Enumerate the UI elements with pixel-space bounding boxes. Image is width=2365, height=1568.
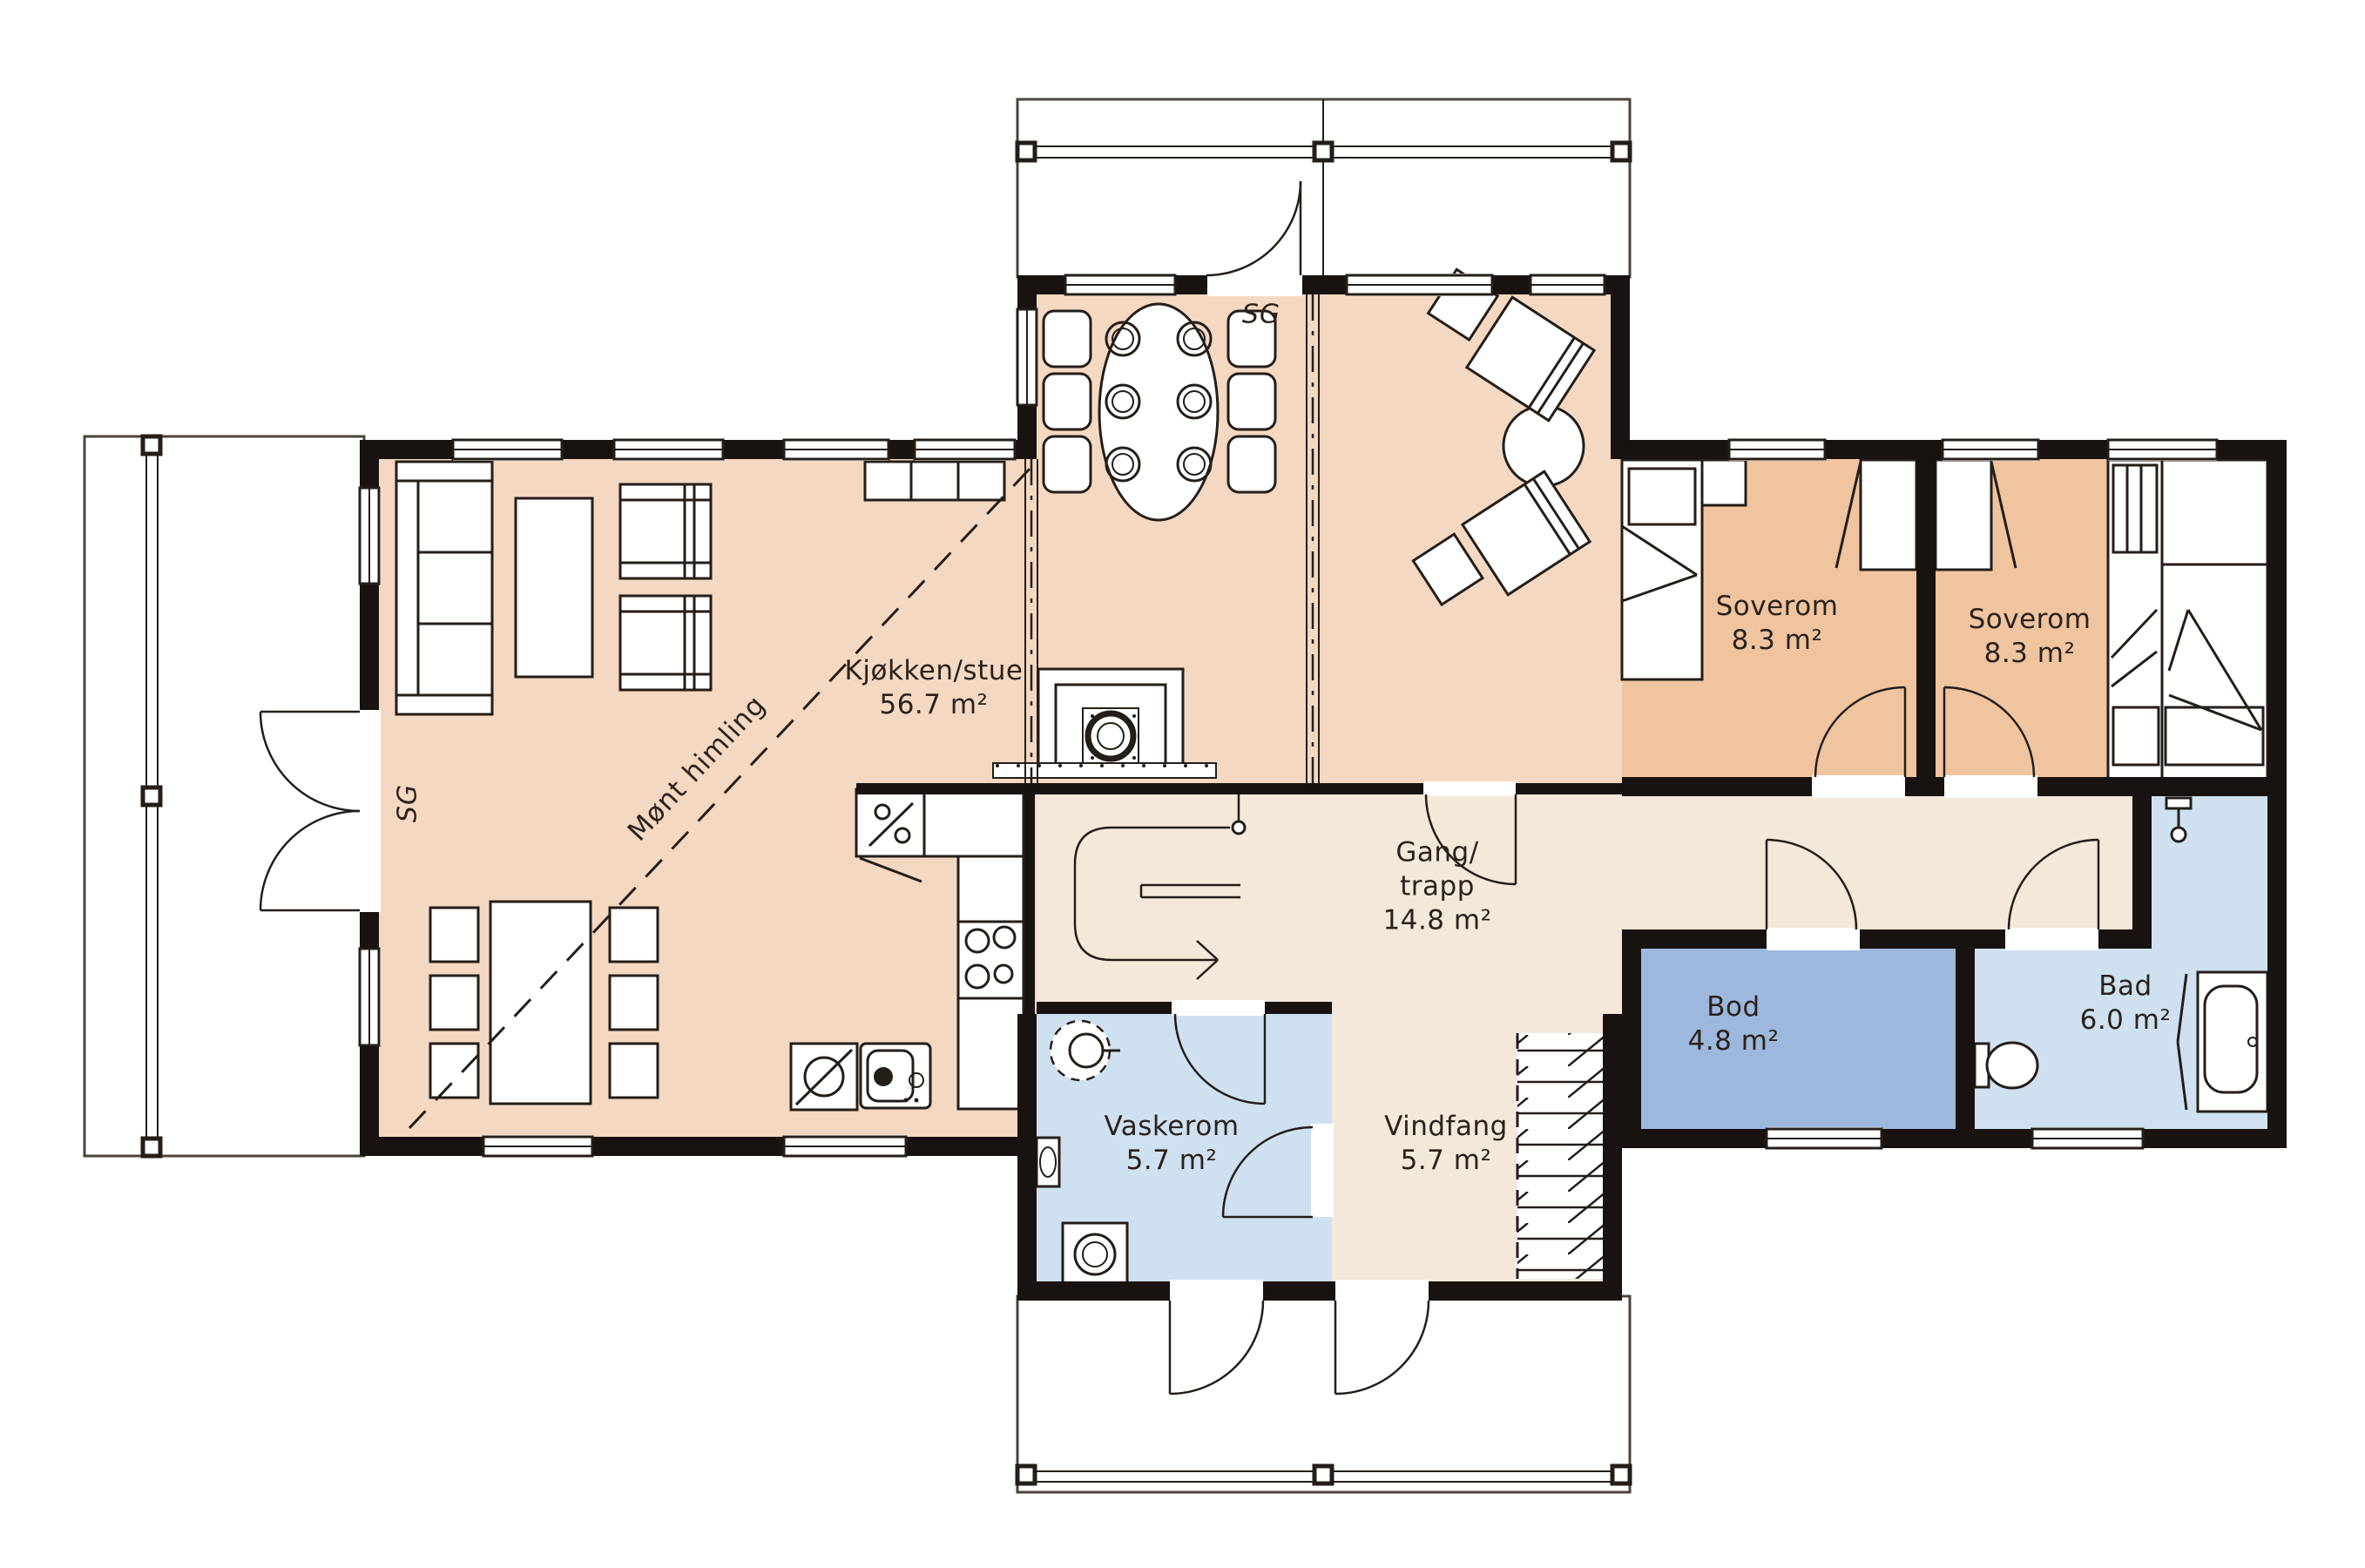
label-kjokken-stue: Kjøkken/stue 56.7 m² — [845, 654, 1024, 722]
room-name: Kjøkken/stue — [845, 654, 1024, 688]
room-area: 56.7 m² — [845, 688, 1024, 722]
stove — [958, 922, 1024, 998]
room-area: 8.3 m² — [1969, 637, 2091, 671]
washing-machine — [1063, 1223, 1127, 1286]
room-area: 4.8 m² — [1688, 1024, 1780, 1058]
room-name: Bod — [1688, 990, 1780, 1024]
coffee-table — [516, 498, 592, 677]
label-sg-left: SG — [393, 784, 423, 822]
room-name: Vaskerom — [1104, 1110, 1239, 1144]
room-name: Vindfang — [1384, 1110, 1508, 1144]
vindfang-closet — [1517, 1033, 1603, 1279]
floor-plan: Kjøkken/stue 56.7 m² Gang/ trapp 14.8 m²… — [0, 0, 2365, 1568]
deck-left — [84, 436, 364, 1156]
kitchen-sink — [861, 1044, 930, 1108]
label-vaskerom: Vaskerom 5.7 m² — [1104, 1110, 1239, 1178]
dining-table — [490, 902, 591, 1104]
room-area: 5.7 m² — [1104, 1144, 1239, 1178]
room-area: 6.0 m² — [2080, 1004, 2172, 1037]
label-soverom-1: Soverom 8.3 m² — [1716, 590, 1839, 658]
room-name: Soverom — [1969, 603, 2091, 637]
room-area: 8.3 m² — [1716, 624, 1839, 658]
armchair-1 — [620, 484, 711, 578]
dishwasher — [791, 1044, 857, 1110]
label-bod: Bod 4.8 m² — [1688, 990, 1780, 1058]
room-name: Bad — [2080, 970, 2172, 1004]
label-vindfang: Vindfang 5.7 m² — [1384, 1110, 1508, 1178]
floor-plan-drawing — [0, 0, 2365, 1568]
label-bad: Bad 6.0 m² — [2080, 970, 2172, 1037]
armchair-2 — [620, 596, 711, 690]
sideboard — [865, 462, 1004, 500]
oval-dining-table — [1099, 304, 1218, 520]
label-sg-top: SG — [1242, 300, 1280, 330]
deck-bottom — [1017, 1296, 1630, 1492]
deck-top — [1017, 99, 1630, 277]
laundry-sink — [1037, 1138, 1059, 1186]
room-name: trapp — [1382, 869, 1491, 903]
room-area: 14.8 m² — [1382, 904, 1491, 938]
label-soverom-2: Soverom 8.3 m² — [1969, 603, 2091, 671]
room-name: Soverom — [1716, 590, 1839, 624]
bunk-bed-soverom-2 — [2108, 460, 2267, 784]
room-name: Gang/ — [1382, 835, 1491, 869]
room-area: 5.7 m² — [1384, 1144, 1508, 1178]
label-gang-trapp: Gang/ trapp 14.8 m² — [1382, 835, 1491, 937]
toilet — [1975, 1043, 2037, 1088]
room-fill-gang — [1037, 783, 1622, 1014]
room-fill-hall — [1622, 796, 2132, 949]
sofa — [396, 462, 492, 714]
